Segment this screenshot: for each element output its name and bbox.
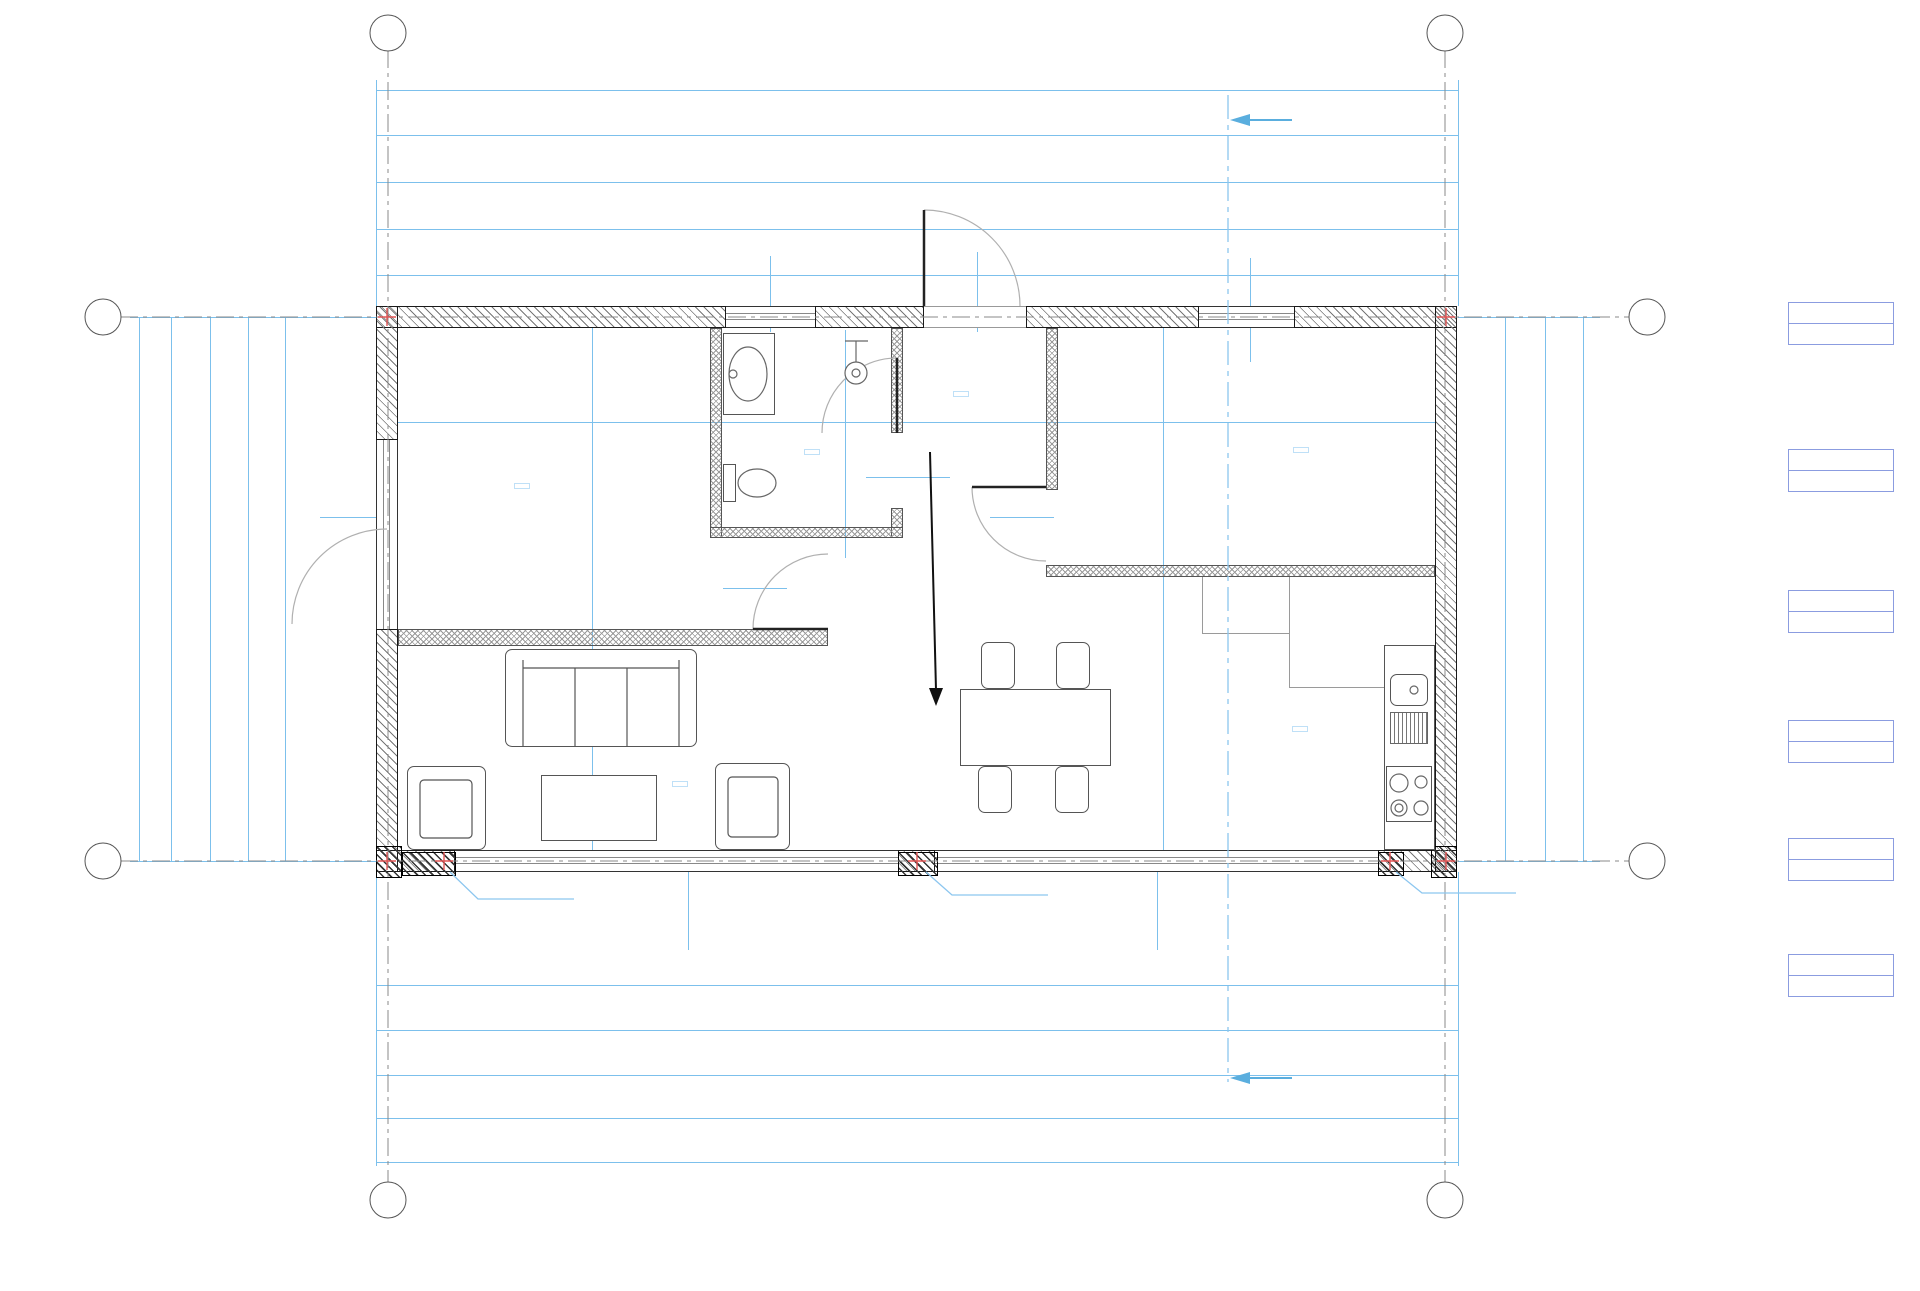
window-door-left [376, 440, 398, 629]
axis-lines [120, 50, 1630, 1183]
axis-circle-a-bottom [370, 1182, 407, 1219]
entrance-opening [924, 306, 1026, 328]
floor-step-line [1202, 577, 1203, 633]
wall-partition [1046, 565, 1435, 577]
armchair [715, 763, 790, 850]
legend-room-number [1788, 449, 1894, 471]
legend-room-area [1788, 975, 1894, 997]
floor-plan-canvas [0, 0, 1920, 1291]
window-bath [726, 306, 815, 328]
dimension-labels-layer [0, 0, 1920, 1291]
axis-circle-1-left [85, 299, 122, 336]
floor-step-line [1202, 633, 1289, 634]
axis-circle-2-left [85, 843, 122, 880]
wall-top [815, 306, 924, 328]
legend-entry [1788, 836, 1906, 881]
wall-top [1294, 306, 1457, 328]
axis-circle-a-top [370, 15, 407, 52]
plan-linework [0, 0, 1920, 1291]
legend-entry [1788, 718, 1906, 763]
wall-right [1435, 306, 1457, 872]
wall-partition [1046, 328, 1058, 490]
room-label-05 [1293, 447, 1309, 453]
wall-partition [710, 328, 722, 538]
axis-circle-2-right [1629, 843, 1666, 880]
wall-partition [710, 527, 903, 538]
chair [1056, 642, 1090, 689]
chair [981, 642, 1015, 689]
section-arrows [1230, 114, 1292, 1084]
room-label-06 [1292, 726, 1308, 732]
wall-top [1026, 306, 1199, 328]
wall-partition [891, 328, 903, 433]
chair [978, 766, 1012, 813]
sofa [505, 649, 697, 747]
window-bottom-right [935, 850, 1378, 872]
chair [1055, 766, 1089, 813]
armchair [407, 766, 486, 850]
legend-room-area [1788, 323, 1894, 345]
legend-room-number [1788, 302, 1894, 324]
room-label-02 [672, 781, 688, 787]
legend-room-number [1788, 838, 1894, 860]
room-label-03 [804, 449, 820, 455]
legend-room-area [1788, 470, 1894, 492]
wall-left [376, 306, 398, 440]
wall-partition [398, 629, 828, 646]
column-pier [376, 846, 402, 878]
legend-entry [1788, 300, 1906, 345]
wall-top [376, 306, 726, 328]
toilet-bowl [738, 469, 776, 497]
wc-cistern [723, 464, 736, 502]
rdz-leader-lines [450, 872, 1516, 899]
column-pier [1378, 852, 1404, 876]
reinforcement-cross-markers [378, 308, 1455, 870]
dining-table [960, 689, 1111, 766]
bath-counter [723, 333, 775, 415]
kitchen-sink [1390, 674, 1428, 706]
window-top-right [1199, 306, 1294, 328]
room-label-01 [514, 483, 530, 489]
floor-step-line [1289, 687, 1384, 688]
column-pier [1431, 846, 1457, 878]
axis-circle-b-top [1427, 15, 1464, 52]
legend-entry [1788, 588, 1906, 633]
window-bottom-left [455, 850, 898, 872]
entrance-arrow [929, 452, 943, 706]
coffee-table [541, 775, 657, 841]
legend-room-area [1788, 611, 1894, 633]
legend-entry [1788, 952, 1906, 997]
room-label-04 [953, 391, 969, 397]
column-pier [402, 852, 456, 876]
wall-left [376, 629, 398, 872]
legend-room-number [1788, 954, 1894, 976]
floor-step-line [1289, 577, 1290, 687]
legend-room-number [1788, 720, 1894, 742]
column-pier [898, 852, 938, 876]
cooktop [1386, 766, 1432, 822]
sink-drainer [1390, 712, 1428, 744]
axis-circle-b-bottom [1427, 1182, 1464, 1219]
door-arcs [292, 210, 1046, 629]
axis-circle-1-right [1629, 299, 1666, 336]
legend-room-area [1788, 859, 1894, 881]
legend-room-number [1788, 590, 1894, 612]
shower-head [845, 362, 867, 384]
legend-room-area [1788, 741, 1894, 763]
legend-entry [1788, 447, 1906, 492]
